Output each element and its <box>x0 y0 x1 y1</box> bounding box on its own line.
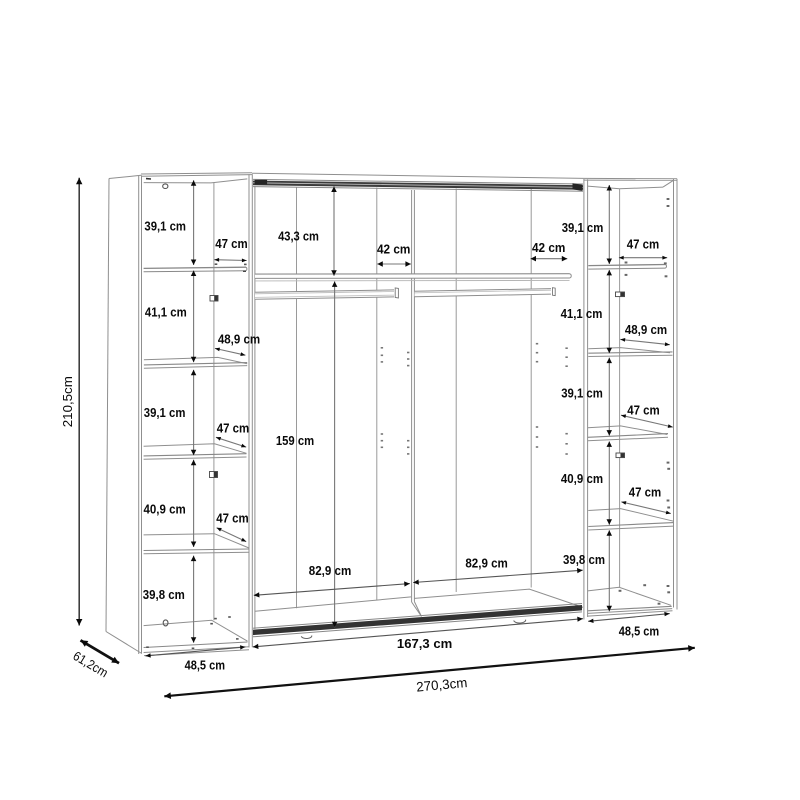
svg-text:48,9 cm: 48,9 cm <box>218 332 260 347</box>
svg-text:48,5 cm: 48,5 cm <box>185 658 225 673</box>
svg-text:47 cm: 47 cm <box>216 511 249 526</box>
svg-text:48,9 cm: 48,9 cm <box>625 322 667 337</box>
svg-text:39,1 cm: 39,1 cm <box>144 405 186 420</box>
svg-text:47 cm: 47 cm <box>215 236 248 251</box>
svg-text:42 cm: 42 cm <box>532 240 565 255</box>
svg-text:82,9 cm: 82,9 cm <box>465 556 508 571</box>
svg-text:39,1 cm: 39,1 cm <box>561 386 603 401</box>
svg-text:42 cm: 42 cm <box>377 242 410 257</box>
svg-text:47 cm: 47 cm <box>629 484 662 499</box>
svg-text:47 cm: 47 cm <box>627 237 660 252</box>
svg-text:41,1 cm: 41,1 cm <box>561 306 603 321</box>
svg-text:39,8 cm: 39,8 cm <box>143 587 185 602</box>
svg-text:43,3 cm: 43,3 cm <box>278 229 319 244</box>
svg-text:47 cm: 47 cm <box>217 421 250 436</box>
svg-text:41,1 cm: 41,1 cm <box>145 305 187 320</box>
svg-text:40,9 cm: 40,9 cm <box>144 502 186 517</box>
svg-text:39,1 cm: 39,1 cm <box>144 219 186 234</box>
svg-text:210,5cm: 210,5cm <box>60 376 75 427</box>
svg-text:47 cm: 47 cm <box>627 403 660 418</box>
svg-text:48,5 cm: 48,5 cm <box>619 624 659 639</box>
svg-text:167,3 cm: 167,3 cm <box>397 636 452 651</box>
svg-text:39,8 cm: 39,8 cm <box>563 552 605 567</box>
svg-text:159 cm: 159 cm <box>276 433 314 448</box>
svg-text:39,1 cm: 39,1 cm <box>562 220 604 235</box>
svg-text:82,9 cm: 82,9 cm <box>309 563 352 578</box>
svg-text:40,9 cm: 40,9 cm <box>561 471 603 486</box>
